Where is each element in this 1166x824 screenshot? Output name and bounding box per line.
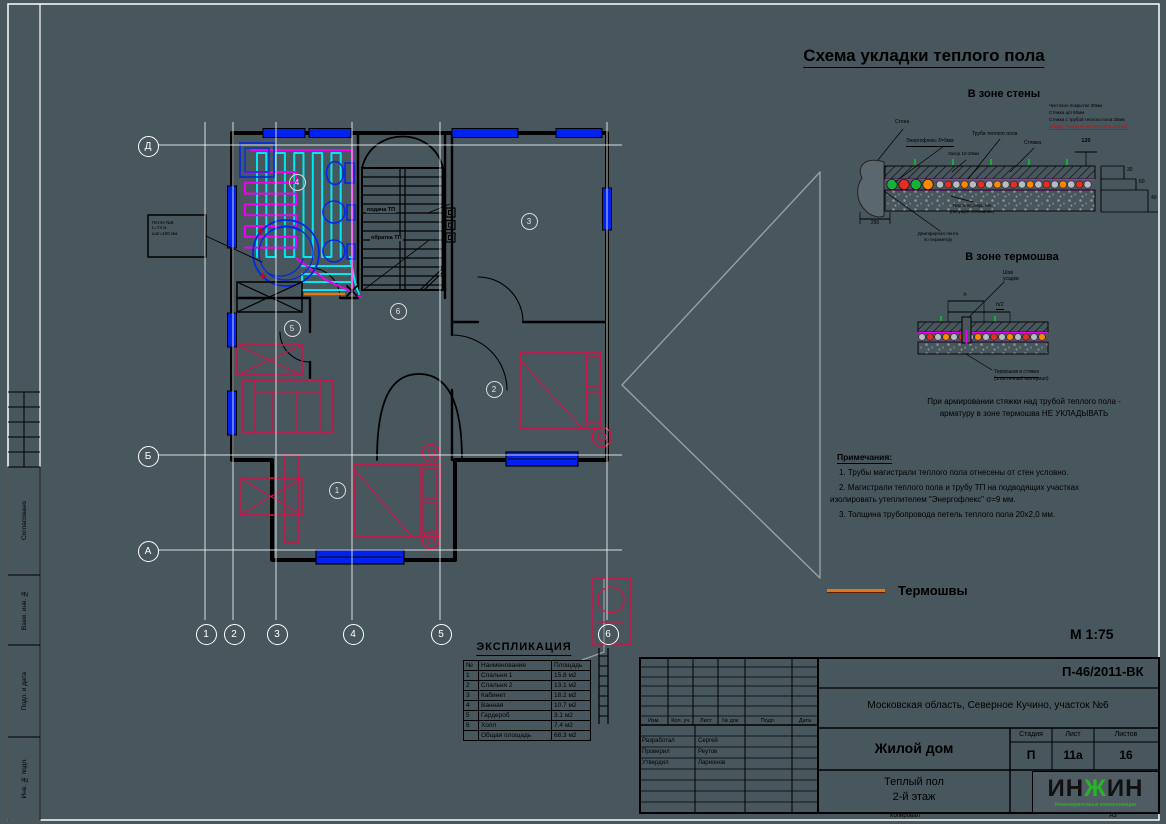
tb-sign-name-1: Реутов	[698, 749, 717, 756]
explication-table: №НаименованиеПлощадь1Спальня 115.8 м22Сп…	[463, 660, 591, 741]
stamp-vzam-inv: Взам. инв. №	[8, 575, 40, 645]
label-seam-2: (эластичный материал)	[994, 377, 1049, 383]
thermal-seam-legend-line	[827, 589, 885, 593]
loop-callout: Петля №8. L=74 м шаг=100 мм	[152, 220, 204, 236]
label-energoflex: Энергофлекс δ=9мм	[906, 139, 954, 147]
object-name: Жилой дом	[875, 740, 954, 757]
explication-row: 1Спальня 115.8 м2	[464, 671, 591, 681]
explication-row-cell: 4	[464, 701, 479, 711]
note-1: 1. Трубы магистрали теплого пола отнесен…	[839, 468, 1068, 477]
loop-callout-line3: шаг=100 мм	[152, 231, 204, 236]
dim-h2: h/2	[996, 302, 1004, 310]
room-number-1: 1	[329, 482, 346, 499]
axis-row-А: А	[138, 541, 159, 562]
project-location: Московская область, Северное Кучино, уча…	[867, 700, 1108, 712]
note-2b: изолировать утеплителем "Энергофлекс" σ=…	[830, 495, 1016, 504]
label-damper-1: Демпферная лента	[918, 231, 959, 236]
explication-row-cell: 1	[464, 671, 479, 681]
explication-row: 5Гардероб3.1 м2	[464, 711, 591, 721]
explication-row-cell: 6	[464, 721, 479, 731]
company-logo: ИНЖИН Инжиниринговые коммуникации	[1032, 771, 1159, 814]
label-layer3: Стяжка с трубой теплого пола 30мм	[1049, 117, 1125, 122]
tb-col-1: Кол. уч.	[671, 718, 691, 724]
explication-total-row-cell: 68.3 м2	[552, 731, 591, 741]
tb-sign-name-0: Сергей	[698, 738, 718, 745]
logo-subtitle: Инжиниринговые коммуникации	[1055, 802, 1136, 808]
label-wall: Стена	[895, 120, 909, 126]
logo-text: ИНЖИН	[1048, 777, 1144, 801]
tb-col-2: Лист	[700, 718, 712, 724]
room-number-6: 6	[390, 303, 407, 320]
list-value: 11а	[1063, 748, 1082, 762]
axis-col-3: 3	[267, 624, 288, 645]
stage-value: П	[1027, 748, 1036, 762]
wall-zone-title: В зоне стены	[968, 88, 1040, 101]
explication-row-cell: Спальня 2	[479, 681, 552, 691]
seam-zone-title: В зоне термошва	[965, 251, 1058, 264]
format-label: А3	[1109, 813, 1116, 820]
axis-row-Д: Д	[138, 136, 159, 157]
dim-40: 40	[1151, 196, 1157, 202]
thermal-seam-legend-label: Термошвы	[898, 583, 968, 598]
label-gap: Зазор 10-20мм	[948, 151, 979, 156]
stamp-podp-data: Подп. и дата	[8, 645, 40, 737]
roof-outline	[582, 172, 820, 660]
dim-30: 30	[1127, 168, 1133, 174]
explication-header-row-cell: Наименование	[479, 661, 552, 671]
tb-col-5: Дата	[799, 718, 811, 724]
stamp-lines	[8, 392, 1159, 820]
label-layer1: Чистовое покрытие 30мм	[1049, 103, 1102, 108]
explication-row-cell: Гардероб	[479, 711, 552, 721]
tb-sign-role-0: Разработал	[642, 738, 675, 745]
label-screed: Стяжка	[1024, 141, 1041, 147]
seam-note-line1: При армировании стяжки над трубой теплог…	[927, 397, 1121, 406]
riser-label-return: обратка ТП	[370, 235, 403, 241]
sheet-name-line1: Теплый пол	[884, 776, 944, 789]
label-layer2: Стяжка ц/п 60мм	[1049, 110, 1084, 115]
explication-row: 3Кабинет18.2 м2	[464, 691, 591, 701]
explication-row-cell: 13.1 м2	[552, 681, 591, 691]
tb-col-4: Подп.	[761, 718, 776, 724]
explication-row-cell: 18.2 м2	[552, 691, 591, 701]
lists-value: 16	[1119, 748, 1132, 762]
explication-total-row: Общая площадь68.3 м2	[464, 731, 591, 741]
stamp-inv-podl: Инв. № подл.	[8, 737, 40, 820]
detail-sections	[858, 129, 1158, 370]
tb-sign-role-2: Утвердил	[642, 760, 669, 767]
explication-row-cell: 10.7 м2	[552, 701, 591, 711]
explication-row-cell: 3	[464, 691, 479, 701]
stage-label: Стадия	[1019, 731, 1043, 739]
explication-row-cell: Ванная	[479, 701, 552, 711]
dim-h: h	[963, 292, 966, 298]
room-number-3: 3	[521, 213, 538, 230]
axis-col-2: 2	[224, 624, 245, 645]
room-number-2: 2	[486, 381, 503, 398]
axis-col-5: 5	[431, 624, 452, 645]
explication-total-row-cell: Общая площадь	[479, 731, 552, 741]
dim-120: 120	[1081, 138, 1090, 144]
label-shov-2: усадки	[1003, 277, 1019, 283]
notes-title: Примечания:	[837, 452, 892, 464]
drawing-sheet: Схема укладки теплого пола В зоне стены …	[0, 0, 1166, 824]
label-damper-2: по периметру	[924, 237, 952, 242]
seam-note-line2: арматуру в зоне термошва НЕ УКЛАДЫВАТЬ	[940, 409, 1109, 418]
explication-header-row-cell: Площадь	[552, 661, 591, 671]
explication-row: 2Спальня 213.1 м2	[464, 681, 591, 691]
room-number-5: 5	[284, 320, 301, 337]
axis-col-6: 6	[598, 624, 619, 645]
label-slab-1: Плита перекрытия	[953, 203, 992, 208]
explication-row: 6Холл7.4 м2	[464, 721, 591, 731]
dim-60: 60	[1139, 180, 1145, 186]
lists-label: Листов	[1115, 731, 1138, 739]
copied-label: Копировал	[890, 813, 920, 820]
label-slab-2: (несущее основание)	[950, 209, 994, 214]
axis-row-Б: Б	[138, 446, 159, 467]
explication-row-cell: Кабинет	[479, 691, 552, 701]
stamp-approved: Согласовано	[8, 467, 40, 575]
explication-header-row-cell: №	[464, 661, 479, 671]
dim-250: 250	[871, 221, 879, 227]
scale-label: М 1:75	[1070, 626, 1114, 643]
explication-title: ЭКСПЛИКАЦИЯ	[476, 641, 571, 656]
tb-col-0: Изм.	[648, 718, 660, 724]
explication-row-cell: 5	[464, 711, 479, 721]
scheme-title: Схема укладки теплого пола	[803, 46, 1044, 68]
explication-header-row: №НаименованиеПлощадь	[464, 661, 591, 671]
note-2: 2. Магистрали теплого пола и трубу ТП на…	[839, 483, 1079, 492]
riser-label-supply: подача ТП	[366, 207, 396, 213]
doc-number: П-46/2011-ВК	[1062, 664, 1144, 679]
explication-row-cell: 15.8 м2	[552, 671, 591, 681]
explication-row-cell: Спальня 1	[479, 671, 552, 681]
tb-sign-name-2: Ларионов	[698, 760, 725, 767]
sheet-name-line2: 2-й этаж	[893, 791, 936, 804]
label-layer-total: Общая толщина чистого пола 120 мм	[1049, 124, 1128, 130]
explication-row-cell: 2	[464, 681, 479, 691]
list-label: Лист	[1065, 731, 1080, 739]
axis-col-1: 1	[196, 624, 217, 645]
tb-col-3: № док.	[722, 718, 740, 724]
explication-row-cell: 7.4 м2	[552, 721, 591, 731]
axis-col-4: 4	[343, 624, 364, 645]
explication-row-cell: Холл	[479, 721, 552, 731]
explication-total-row-cell	[464, 731, 479, 741]
label-pipe: Труба теплого пола	[972, 132, 1017, 138]
explication-row: 4Ванная10.7 м2	[464, 701, 591, 711]
explication-row-cell: 3.1 м2	[552, 711, 591, 721]
tb-sign-role-1: Проверил	[642, 749, 670, 756]
note-3: 3. Толщина трубопровода петель теплого п…	[839, 510, 1055, 519]
room-number-4: 4	[289, 174, 306, 191]
